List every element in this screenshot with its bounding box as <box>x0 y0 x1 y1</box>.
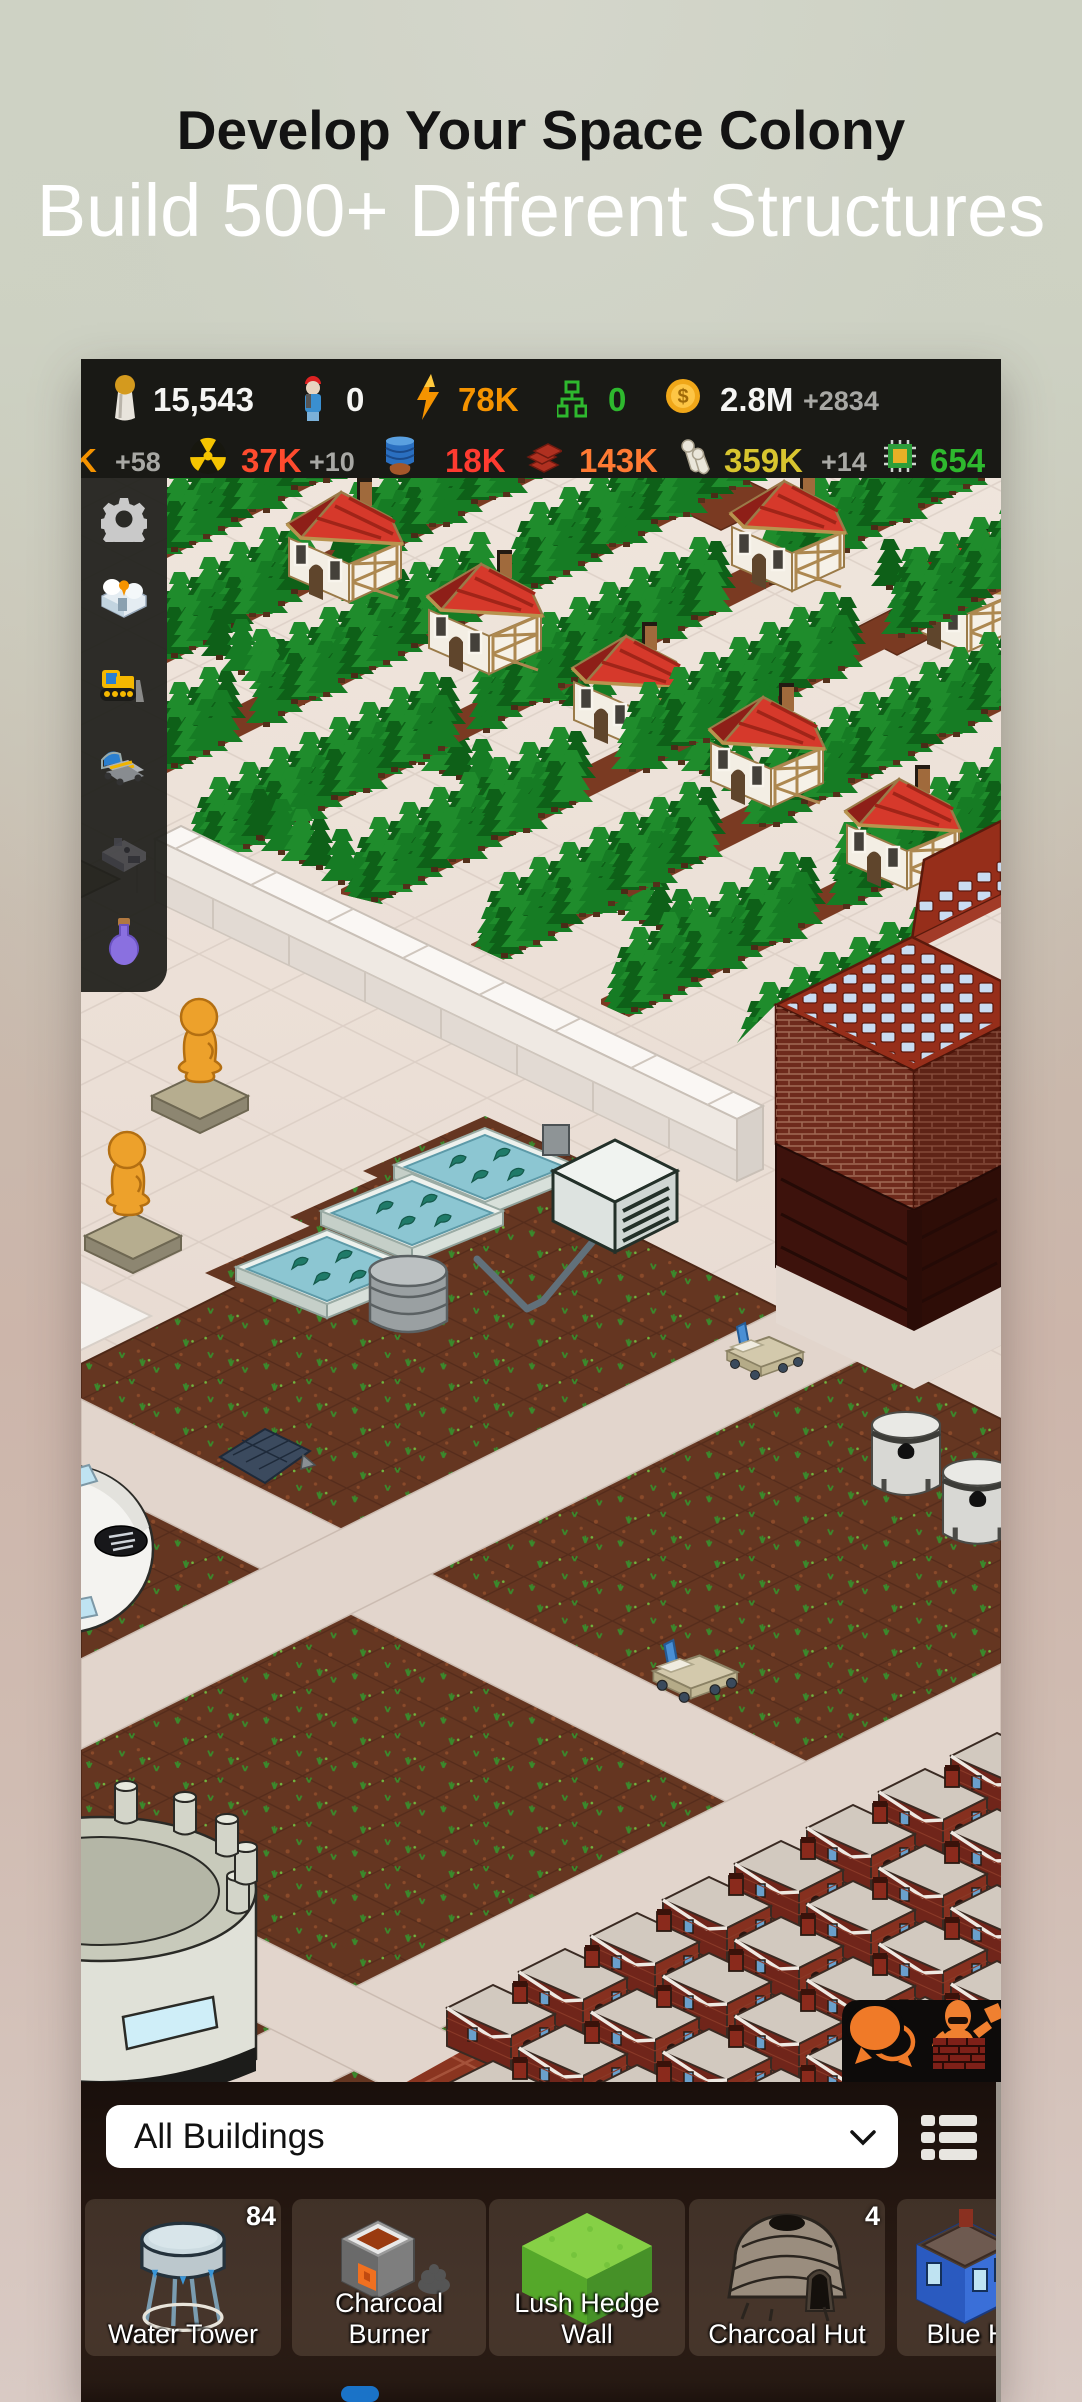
svg-text:$: $ <box>677 386 688 408</box>
